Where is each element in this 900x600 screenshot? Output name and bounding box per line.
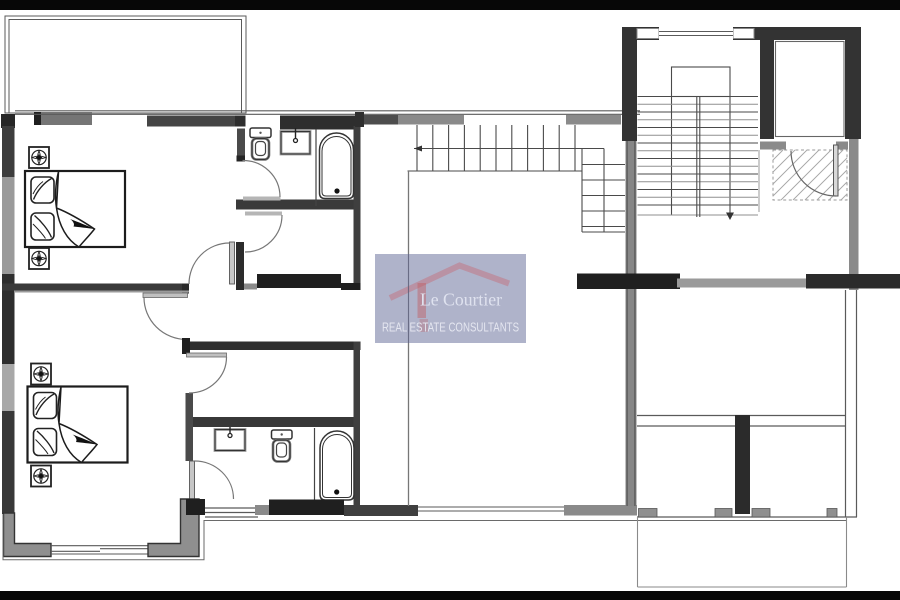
svg-text:Le Courtier: Le Courtier <box>420 290 502 310</box>
svg-text:REAL ESTATE CONSULTANTS: REAL ESTATE CONSULTANTS <box>382 321 519 335</box>
